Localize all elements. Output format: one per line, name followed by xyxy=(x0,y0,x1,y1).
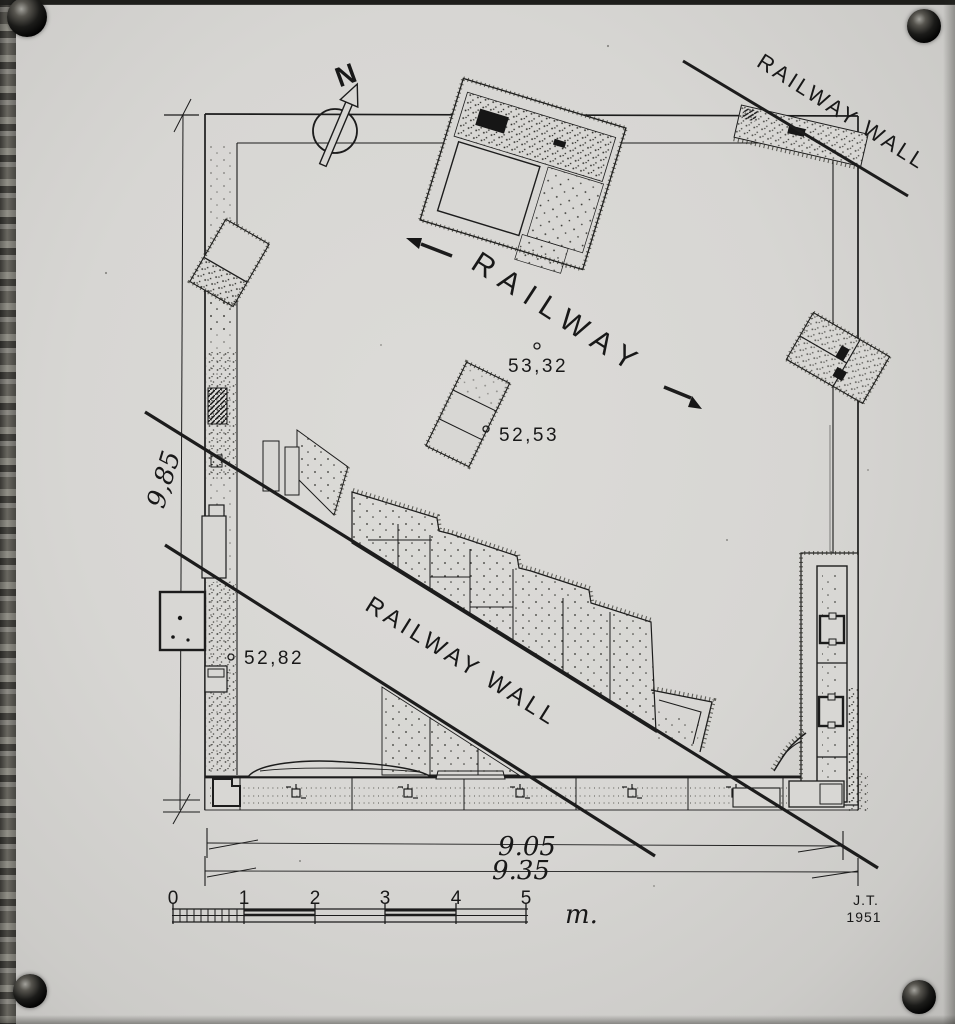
railway-direction-arrow-right xyxy=(664,387,702,409)
tilted-structure-center xyxy=(426,362,510,467)
scale-tick-2: 2 xyxy=(310,888,321,909)
scale-tick-5: 5 xyxy=(521,888,532,909)
bottom-wall xyxy=(205,761,858,810)
photo-corner-pin-top-right xyxy=(907,9,941,43)
scanned-plan-photo: 9,85 xyxy=(0,0,955,1024)
railway-direction-arrow-left xyxy=(406,238,452,256)
bottom-dimensions: 9.05 9.35 xyxy=(205,828,858,886)
scale-tick-4: 4 xyxy=(451,888,462,909)
spot-elevation-2: 52,53 xyxy=(483,425,559,446)
spot-elevation-1: 53,32 xyxy=(508,343,568,377)
spot-elevation-1-label: 53,32 xyxy=(508,356,568,377)
north-label: N xyxy=(331,57,361,93)
signature-year: 1951 xyxy=(846,909,881,925)
spot-elevation-3-label: 52,82 xyxy=(244,648,304,669)
north-arrow: N xyxy=(313,57,366,169)
scale-unit-label: m. xyxy=(565,900,598,930)
excavation-plan-drawing: 9,85 xyxy=(0,0,955,1024)
tilted-structure-upper-left xyxy=(190,219,269,306)
scale-tick-3: 3 xyxy=(380,888,391,909)
photo-corner-pin-bottom-left xyxy=(13,974,47,1008)
scale-tick-0: 0 xyxy=(168,888,179,909)
photo-corner-pin-bottom-right xyxy=(902,980,936,1014)
spot-elevation-3: 52,82 xyxy=(228,648,304,669)
sloped-rubble-panel xyxy=(263,430,348,515)
tilted-structure-right xyxy=(786,313,889,404)
dimension-left-label: 9,85 xyxy=(142,448,188,512)
spot-elevation-2-label: 52,53 xyxy=(499,425,559,446)
scale-tick-1: 1 xyxy=(239,888,250,909)
scale-bar: 0 1 2 3 4 5 m. xyxy=(168,888,598,930)
left-outside-box xyxy=(160,592,205,650)
wall-pier-bottom-right xyxy=(772,553,868,812)
signature-initials: J.T. xyxy=(853,892,879,908)
dimension-bottom-outer-label: 9.35 xyxy=(492,856,550,886)
corner-feature-bottom-right xyxy=(651,688,714,752)
signature: J.T. 1951 xyxy=(846,892,881,925)
left-dimension: 9,85 xyxy=(142,99,200,824)
building-structure-top xyxy=(417,78,626,279)
